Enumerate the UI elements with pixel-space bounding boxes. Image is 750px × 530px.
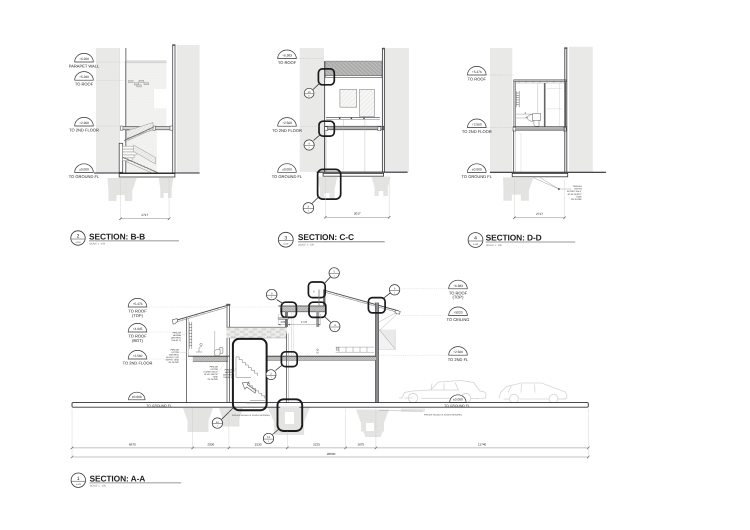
svg-text:2000: 2000 (207, 443, 214, 447)
svg-text:510: 510 (316, 348, 320, 353)
svg-text:TO 2ND FLOOR: TO 2ND FLOOR (272, 128, 302, 133)
svg-text:TO 2ND FLOOR: TO 2ND FLOOR (462, 129, 492, 134)
svg-text:KOTOR: KOTOR (574, 188, 582, 191)
svg-text:±0.000: ±0.000 (282, 167, 292, 171)
svg-text:±0.000: ±0.000 (132, 395, 142, 399)
svg-text:SCALE 1 : 100: SCALE 1 : 100 (90, 485, 106, 488)
svg-text:2% SLOPE: 2% SLOPE (207, 378, 218, 381)
svg-text:2: 2 (77, 234, 80, 240)
svg-text:A-103: A-103 (76, 483, 81, 486)
svg-text:KLOSET DIA 4": KLOSET DIA 4" (567, 190, 582, 193)
svg-text:SCALE 1 : 100: SCALE 1 : 100 (486, 244, 502, 247)
svg-text:A-103: A-103 (473, 243, 478, 246)
svg-text:6675: 6675 (129, 443, 136, 447)
svg-text:1: 1 (77, 476, 80, 482)
svg-text:SCALE 1 : 100: SCALE 1 : 100 (298, 244, 314, 247)
svg-text:+6.383: +6.383 (453, 284, 463, 288)
svg-text:2717: 2717 (141, 213, 148, 217)
svg-text:TANK: TANK (576, 195, 582, 198)
svg-text:+2.560: +2.560 (133, 354, 143, 358)
svg-text:3225: 3225 (313, 443, 320, 447)
svg-text:SECTION: B-B: SECTION: B-B (89, 231, 145, 241)
svg-text:TO GROUND FL: TO GROUND FL (69, 174, 100, 179)
svg-text:±0.000: ±0.000 (472, 167, 482, 171)
svg-text:1770: 1770 (301, 320, 308, 324)
svg-text:3: 3 (284, 235, 287, 241)
svg-text:A-103: A-103 (75, 241, 80, 244)
svg-text:+2.560: +2.560 (472, 123, 482, 127)
svg-text:+5.476: +5.476 (472, 70, 482, 74)
svg-text:±0.000: ±0.000 (453, 398, 463, 402)
svg-text:SECTION: C-C: SECTION: C-C (298, 232, 354, 242)
svg-text:+4.945: +4.945 (133, 327, 143, 331)
svg-text:2% SLOPE: 2% SLOPE (168, 361, 179, 364)
svg-text:+5.476: +5.476 (133, 302, 143, 306)
svg-text:TO 2ND FL: TO 2ND FL (448, 357, 469, 362)
svg-text:+2.960: +2.960 (79, 121, 89, 125)
svg-text:PARAPET WALL: PARAPET WALL (69, 64, 100, 69)
svg-text:TO GROUND FL: TO GROUND FL (462, 174, 493, 179)
svg-text:3230: 3230 (255, 443, 262, 447)
svg-text:TO 2ND FLOOR: TO 2ND FLOOR (123, 361, 153, 366)
svg-text:28600: 28600 (327, 452, 336, 456)
svg-text:2717: 2717 (536, 212, 543, 216)
svg-text:A-103: A-103 (283, 243, 288, 246)
svg-text:+2.560: +2.560 (453, 350, 463, 354)
svg-text:TO GROUND FL: TO GROUND FL (146, 404, 172, 408)
svg-text:PIPA AIR HUJAN KE SUMUR RESAPA: PIPA AIR HUJAN KE SUMUR RESAPAN (232, 414, 270, 417)
svg-text:(TOP): (TOP) (132, 313, 144, 318)
svg-text:TO ROOF: TO ROOF (278, 60, 297, 65)
svg-text:DIA 4(1 F): DIA 4(1 F) (172, 339, 182, 342)
svg-text:500: 500 (281, 320, 286, 324)
svg-text:+2.560: +2.560 (282, 121, 292, 125)
svg-text:SCALE 1 : 100: SCALE 1 : 100 (89, 243, 105, 246)
svg-text:3017: 3017 (354, 212, 361, 216)
svg-text:TO ROOF: TO ROOF (468, 77, 487, 82)
svg-text:DIA 4(1 F): DIA 4(1 F) (224, 376, 234, 379)
svg-text:TO CEILING: TO CEILING (447, 317, 470, 322)
svg-text:(TOP): (TOP) (453, 295, 465, 300)
svg-text:SECTION: A-A: SECTION: A-A (90, 473, 146, 483)
svg-text:PIPA AIR: PIPA AIR (573, 185, 582, 188)
svg-text:TO 2ND FLOOR: TO 2ND FLOOR (69, 128, 99, 133)
svg-text:11740: 11740 (478, 443, 487, 447)
svg-text:1675: 1675 (357, 443, 364, 447)
svg-text:±0.000: ±0.000 (79, 167, 89, 171)
svg-text:SECTION: D-D: SECTION: D-D (486, 232, 542, 242)
svg-text:4: 4 (474, 236, 477, 242)
svg-text:TO ROOF: TO ROOF (75, 82, 94, 87)
svg-text:PIPA AIR HUJAN KE SUMUR RESAPA: PIPA AIR HUJAN KE SUMUR RESAPAN (424, 414, 462, 417)
svg-text:AT-KE SEPTIC: AT-KE SEPTIC (568, 193, 582, 196)
svg-text:+5020: +5020 (454, 311, 463, 315)
svg-text:(BOT): (BOT) (132, 338, 144, 343)
svg-text:TO GROUND FL: TO GROUND FL (444, 404, 470, 408)
svg-text:+6.383: +6.383 (282, 54, 292, 58)
svg-text:TO GROUND FL: TO GROUND FL (272, 174, 303, 179)
svg-text:2% SLOPE: 2% SLOPE (571, 198, 582, 201)
svg-text:+5.200: +5.200 (79, 75, 89, 79)
svg-text:+6.200: +6.200 (79, 57, 89, 61)
